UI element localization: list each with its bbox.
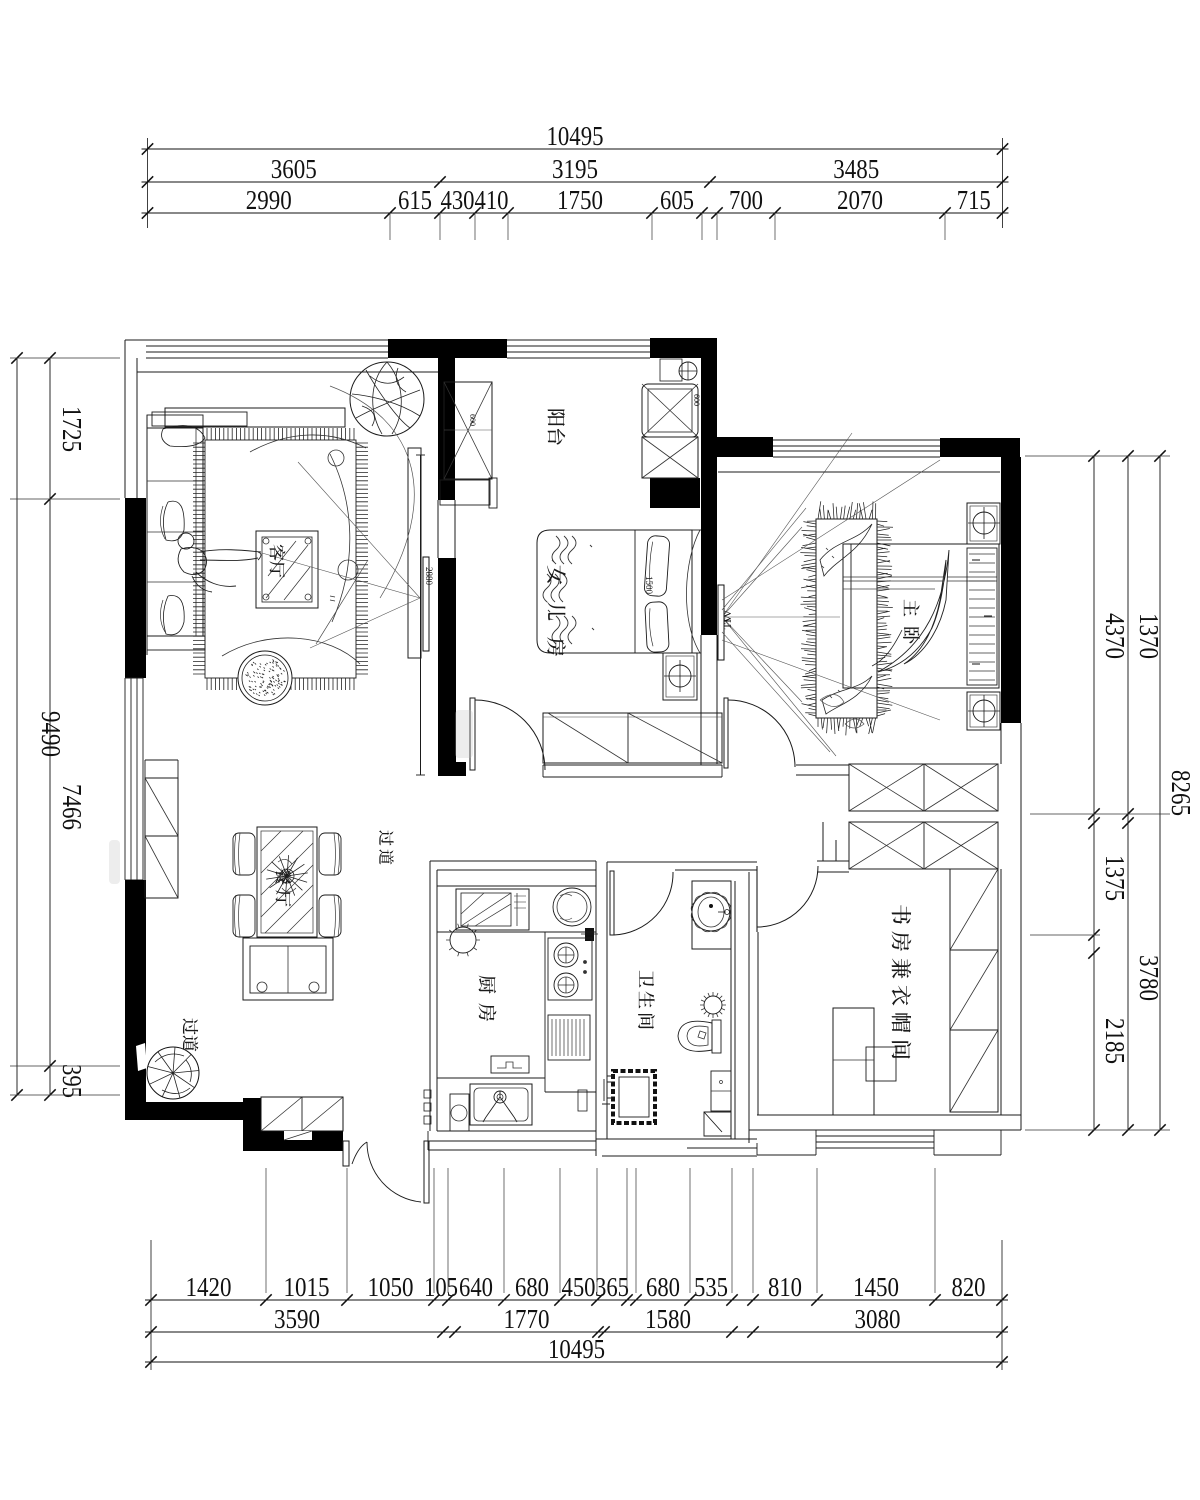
- svg-text:8265: 8265: [1166, 770, 1196, 816]
- svg-text:105: 105: [424, 1272, 458, 1302]
- svg-text:1420: 1420: [186, 1272, 232, 1302]
- svg-text:1375: 1375: [1100, 855, 1130, 901]
- svg-text:450: 450: [562, 1272, 596, 1302]
- svg-text:1050: 1050: [368, 1272, 414, 1302]
- svg-text:1725: 1725: [57, 406, 87, 452]
- svg-text:9490: 9490: [36, 711, 66, 757]
- svg-text:TV: TV: [722, 615, 734, 630]
- svg-text:410: 410: [475, 185, 509, 215]
- svg-text:715: 715: [957, 185, 991, 215]
- svg-text:2070: 2070: [837, 185, 883, 215]
- svg-text:7466: 7466: [57, 784, 87, 830]
- svg-text:820: 820: [952, 1272, 986, 1302]
- svg-text:810: 810: [768, 1272, 802, 1302]
- svg-text:395: 395: [57, 1064, 87, 1098]
- svg-text:10495: 10495: [547, 121, 604, 151]
- svg-text:600: 600: [692, 394, 701, 406]
- svg-text:2185: 2185: [1100, 1018, 1130, 1064]
- svg-text:365: 365: [595, 1272, 629, 1302]
- svg-text:3485: 3485: [833, 154, 879, 184]
- svg-text:3780: 3780: [1134, 955, 1164, 1001]
- svg-text:1750: 1750: [557, 185, 603, 215]
- svg-text:1500: 1500: [644, 576, 654, 595]
- svg-text:535: 535: [694, 1272, 728, 1302]
- svg-text:4370: 4370: [1100, 613, 1130, 659]
- svg-text:10495: 10495: [548, 1334, 605, 1364]
- svg-text:2880: 2880: [424, 567, 434, 586]
- svg-text:3590: 3590: [274, 1304, 320, 1334]
- svg-text:2990: 2990: [246, 185, 292, 215]
- svg-text:3080: 3080: [855, 1304, 901, 1334]
- svg-text:3195: 3195: [552, 154, 598, 184]
- svg-text:680: 680: [515, 1272, 549, 1302]
- svg-text:600: 600: [468, 414, 477, 426]
- svg-text:1770: 1770: [504, 1304, 550, 1334]
- svg-text:1580: 1580: [645, 1304, 691, 1334]
- svg-text:700: 700: [729, 185, 763, 215]
- svg-text:680: 680: [646, 1272, 680, 1302]
- svg-text:640: 640: [459, 1272, 493, 1302]
- svg-text:1450: 1450: [853, 1272, 899, 1302]
- svg-text:1370: 1370: [1134, 613, 1164, 659]
- svg-text:615: 615: [398, 185, 432, 215]
- svg-text:3605: 3605: [271, 154, 317, 184]
- svg-text:1015: 1015: [284, 1272, 330, 1302]
- svg-text:605: 605: [660, 185, 694, 215]
- svg-text:430: 430: [441, 185, 475, 215]
